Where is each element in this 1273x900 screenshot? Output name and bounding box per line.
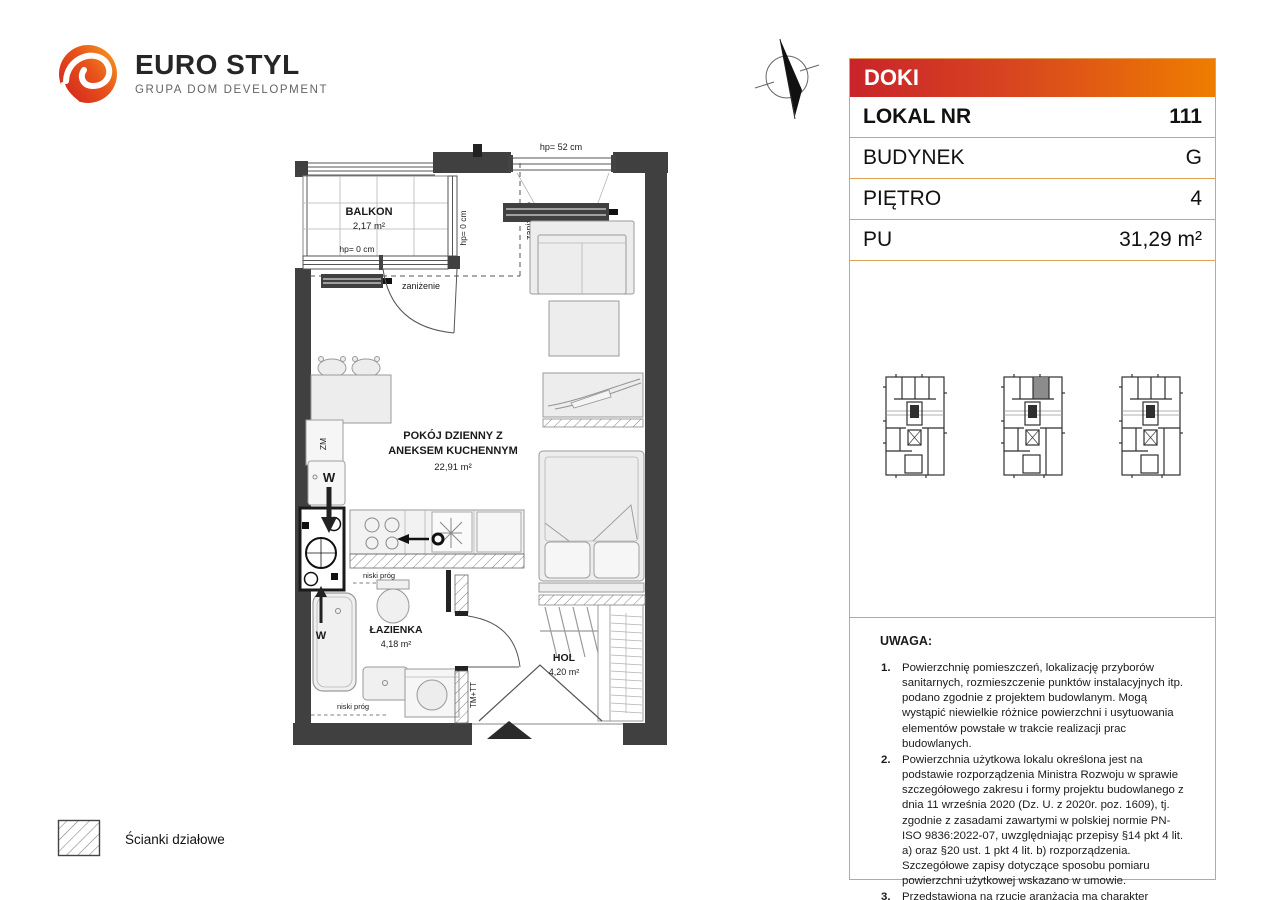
meter-label: TM+TT xyxy=(469,682,478,708)
key-plan-left xyxy=(882,373,948,479)
vent-label: W xyxy=(316,630,327,642)
apartment-floor-plan: hp= 52 cm BALKON 2,17 m² hp= 0 cm hp= 0 … xyxy=(293,143,675,770)
toilet xyxy=(377,580,409,623)
kitchen-counter xyxy=(350,510,524,554)
dining-table-chairs xyxy=(311,357,391,424)
project-name: DOKI xyxy=(850,59,1215,97)
logo-title: EURO STYL xyxy=(135,51,328,79)
note-item: Przedstawiona na rzucie aranżacja ma cha… xyxy=(902,890,1189,900)
north-arrow-icon xyxy=(745,30,831,130)
window-height-label: hp= 52 cm xyxy=(540,143,582,152)
low-threshold-label: niski próg xyxy=(363,571,395,580)
wardrobe xyxy=(598,605,643,721)
bathroom-partition xyxy=(455,575,468,723)
row-budynek-value: G xyxy=(1186,146,1202,170)
hall-area: 4,20 m² xyxy=(549,667,580,677)
low-threshold-label: niski próg xyxy=(337,702,369,711)
bathtub xyxy=(313,593,356,691)
pillow xyxy=(594,542,639,578)
dishwasher-label: ZM xyxy=(318,438,328,450)
notes-title: UWAGA: xyxy=(880,634,1189,648)
key-plan-center xyxy=(1000,373,1066,479)
highlighted-unit xyxy=(1033,378,1049,399)
bathroom-cabinet xyxy=(446,570,451,612)
balcony-door xyxy=(383,269,457,333)
balcony-area: 2,17 m² xyxy=(353,221,385,232)
note-item: Powierzchnia użytkowa lokalu określona j… xyxy=(902,753,1189,889)
living-room-name-1: POKÓJ DZIENNY Z xyxy=(403,429,503,442)
balcony-door-sill-label: hp= 0 cm xyxy=(458,210,468,245)
building-key-plans xyxy=(850,261,1215,618)
partition-wall-hatch-icon xyxy=(57,819,103,859)
key-plan-right xyxy=(1118,373,1184,479)
coffee-table xyxy=(549,301,619,356)
fridge xyxy=(477,512,521,552)
installation-shaft xyxy=(300,508,344,590)
row-budynek: BUDYNEK G xyxy=(850,138,1215,179)
washing-machine xyxy=(405,669,459,717)
notes-list: Powierzchnię pomieszczeń, lokalizację pr… xyxy=(880,661,1189,900)
row-pu: PU 31,29 m² xyxy=(850,220,1215,261)
row-lokal-label: LOKAL NR xyxy=(863,105,971,129)
floor-plan-card: EURO STYL GRUPA DOM DEVELOPMENT xyxy=(0,0,1273,900)
sofa xyxy=(530,221,634,294)
note-item: Powierzchnię pomieszczeń, lokalizację pr… xyxy=(902,661,1189,752)
wall-above-balcony xyxy=(295,161,435,177)
balcony-sill-label: hp= 0 cm xyxy=(339,244,374,254)
balcony-name: BALKON xyxy=(345,206,392,218)
logo-subtitle: GRUPA DOM DEVELOPMENT xyxy=(135,84,328,96)
row-pu-label: PU xyxy=(863,228,892,252)
legend-label: Ścianki działowe xyxy=(125,832,225,847)
living-room-name-2: ANEKSEM KUCHENNYM xyxy=(388,445,518,457)
row-pu-value: 31,29 m² xyxy=(1119,228,1202,252)
pillow xyxy=(545,542,590,578)
bathroom-sink xyxy=(363,667,408,700)
partition-wall xyxy=(350,554,524,568)
company-logo: EURO STYL GRUPA DOM DEVELOPMENT xyxy=(55,40,328,106)
bathroom-area: 4,18 m² xyxy=(381,639,412,649)
unit-info-panel: DOKI LOKAL NR 111 BUDYNEK G PIĘTRO 4 PU … xyxy=(849,58,1216,880)
radiator xyxy=(321,274,392,288)
coat-hooks xyxy=(540,607,603,657)
eurostyl-flame-icon xyxy=(55,40,121,106)
desk xyxy=(543,373,643,427)
row-pietro-label: PIĘTRO xyxy=(863,187,941,211)
notes-section: UWAGA: Powierzchnię pomieszczeń, lokaliz… xyxy=(850,618,1215,900)
vent-label: W xyxy=(323,470,336,485)
lowered-ceiling-label-h: zaniżenie xyxy=(402,281,440,291)
bathroom-door xyxy=(468,616,520,667)
headboard xyxy=(539,583,644,592)
bed xyxy=(539,451,644,592)
row-pietro: PIĘTRO 4 xyxy=(850,179,1215,220)
row-budynek-label: BUDYNEK xyxy=(863,146,965,170)
legend: Ścianki działowe xyxy=(57,819,225,859)
partition-wall xyxy=(539,595,645,605)
living-room-area: 22,91 m² xyxy=(434,462,472,473)
row-lokal: LOKAL NR 111 xyxy=(850,97,1215,138)
bathroom-name: ŁAZIENKA xyxy=(369,624,422,636)
radiator xyxy=(503,203,618,222)
row-lokal-value: 111 xyxy=(1169,105,1202,129)
hall-name: HOL xyxy=(553,652,576,664)
row-pietro-value: 4 xyxy=(1190,187,1202,211)
